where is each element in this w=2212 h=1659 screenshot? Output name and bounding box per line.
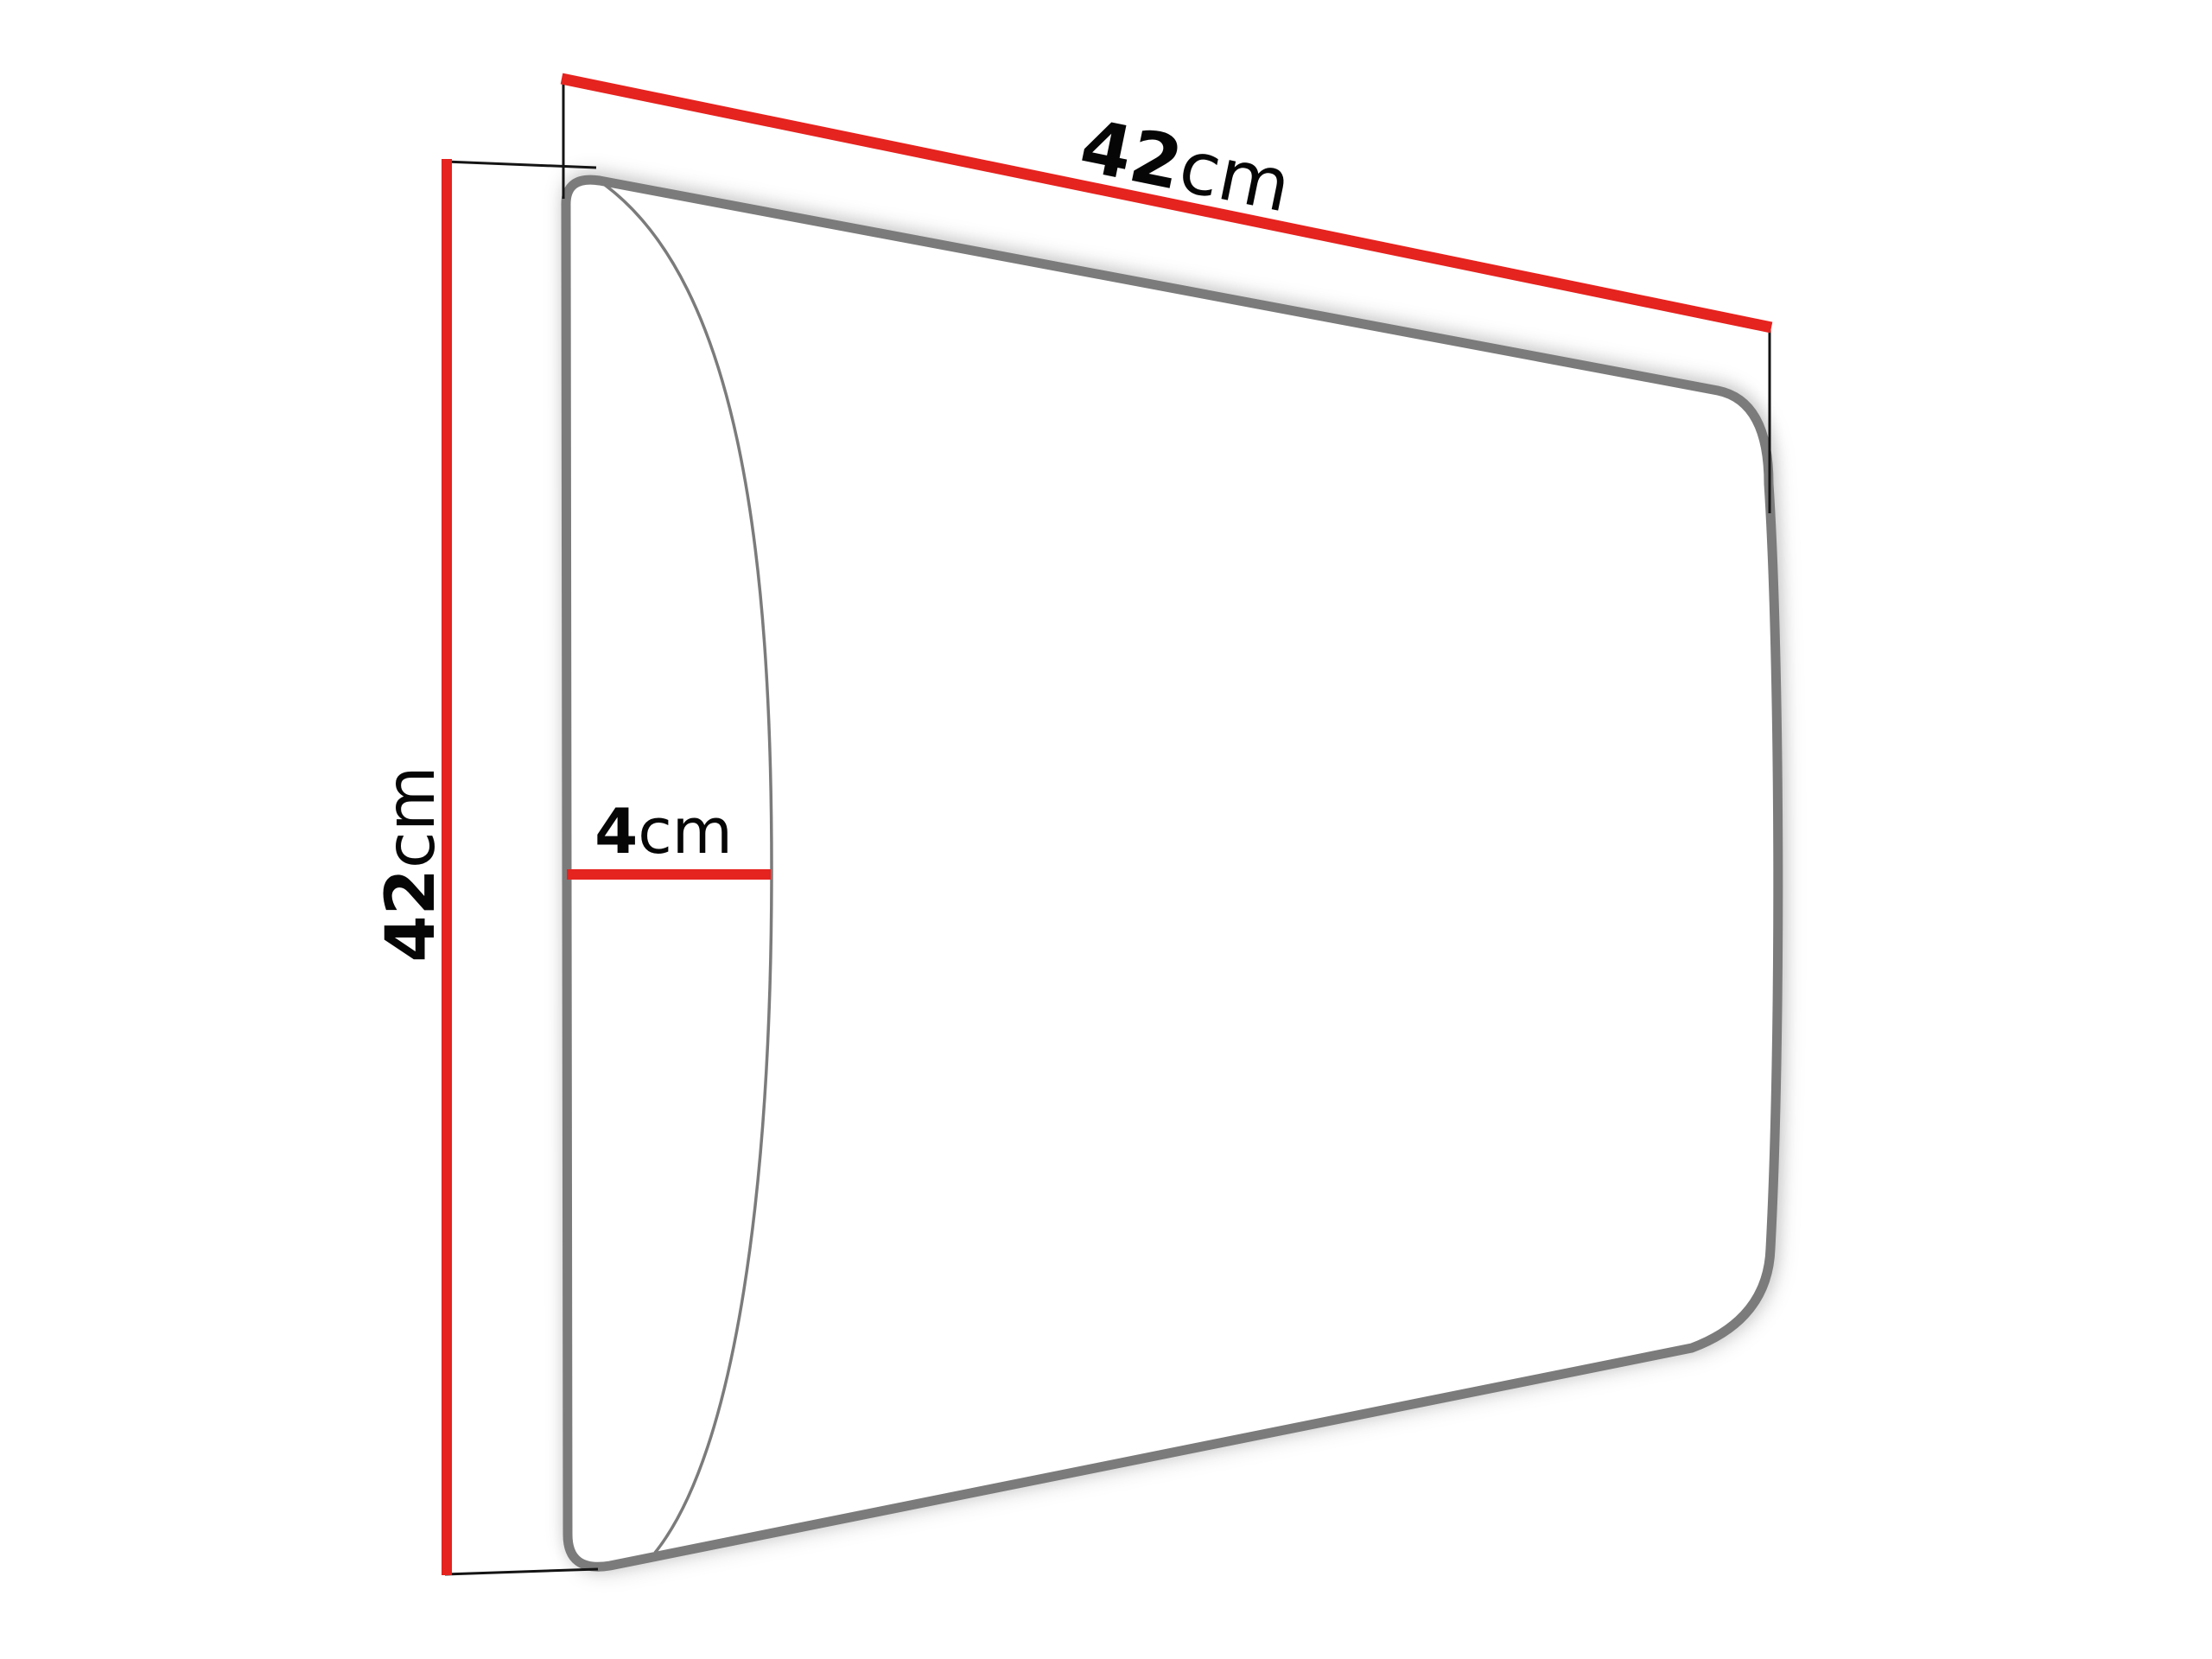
dimension-diagram: 42 cm 42 cm 4 cm	[0, 0, 2212, 1659]
depth-dimension-label: 4 cm	[594, 800, 733, 862]
depth-value: 4	[594, 800, 638, 862]
panel-drawing	[0, 0, 2212, 1659]
depth-unit: cm	[638, 800, 733, 862]
height-value: 42	[378, 868, 445, 963]
extension-line-bottom-left-horizontal	[445, 1569, 598, 1574]
width-unit: cm	[1173, 130, 1296, 223]
extension-line-top-left-horizontal	[445, 162, 596, 168]
height-unit: cm	[378, 766, 445, 868]
width-value: 42	[1075, 109, 1188, 200]
height-dimension-label: 42 cm	[378, 766, 445, 962]
